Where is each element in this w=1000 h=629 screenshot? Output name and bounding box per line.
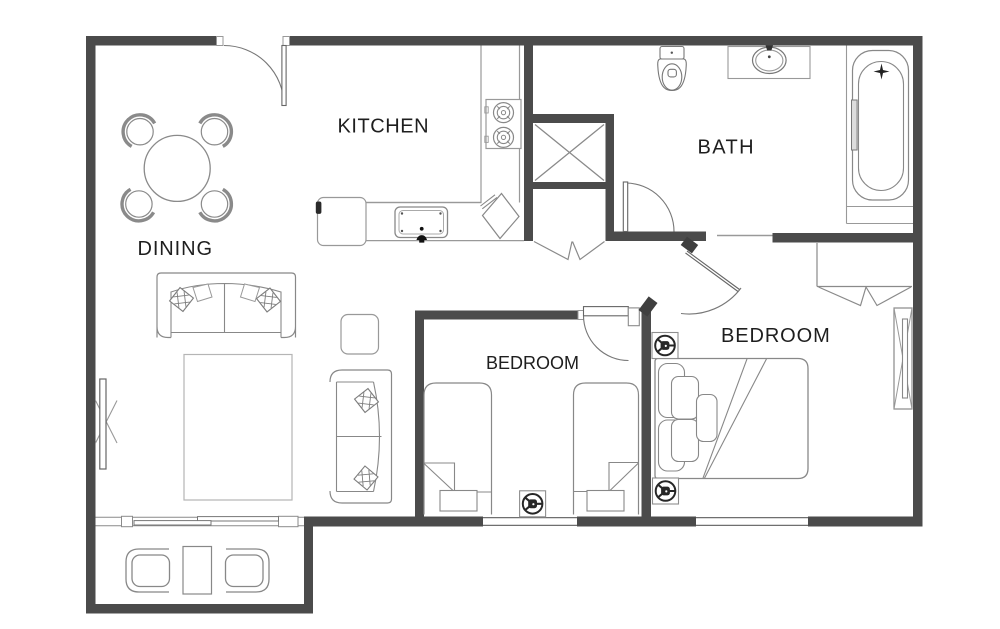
svg-text:BEDROOM: BEDROOM bbox=[721, 325, 831, 347]
svg-text:DINING: DINING bbox=[138, 238, 213, 260]
svg-text:KITCHEN: KITCHEN bbox=[338, 116, 430, 138]
svg-text:BATH: BATH bbox=[698, 137, 755, 159]
svg-text:BEDROOM: BEDROOM bbox=[486, 353, 579, 373]
